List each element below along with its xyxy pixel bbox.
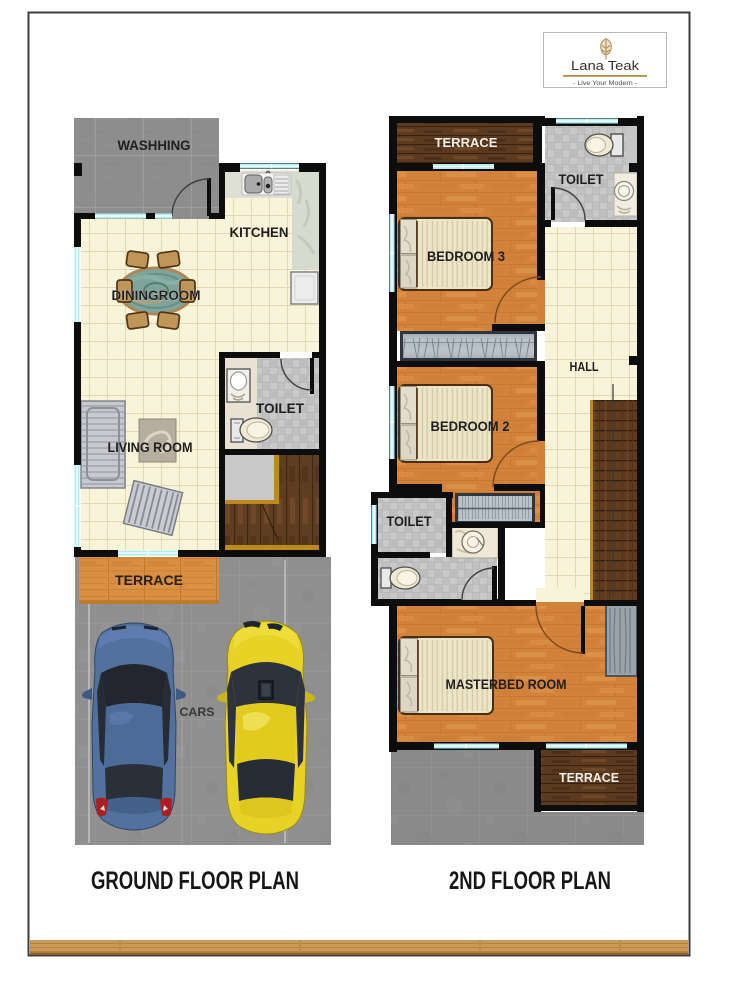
svg-text:TOILET: TOILET — [256, 401, 305, 416]
svg-text:BEDROOM 2: BEDROOM 2 — [431, 419, 510, 434]
svg-text:HALL: HALL — [570, 360, 599, 374]
svg-text:Lana Teak: Lana Teak — [571, 58, 640, 73]
svg-text:TOILET: TOILET — [559, 172, 605, 187]
svg-text:TOILET: TOILET — [387, 514, 433, 529]
svg-text:DININGROOM: DININGROOM — [112, 288, 201, 303]
svg-text:KITCHEN: KITCHEN — [230, 225, 289, 240]
svg-text:2ND FLOOR PLAN: 2ND FLOOR PLAN — [449, 867, 611, 895]
svg-text:MASTERBED ROOM: MASTERBED ROOM — [446, 677, 567, 692]
svg-text:LIVING ROOM: LIVING ROOM — [108, 440, 193, 455]
svg-text:WASHHING: WASHHING — [118, 138, 191, 153]
svg-text:GROUND FLOOR PLAN: GROUND FLOOR PLAN — [91, 867, 299, 895]
svg-text:CARS: CARS — [180, 705, 215, 719]
svg-text:TERRACE: TERRACE — [559, 770, 619, 785]
svg-text:TERRACE: TERRACE — [435, 135, 498, 150]
svg-text:BEDROOM 3: BEDROOM 3 — [427, 249, 505, 264]
svg-text:TERRACE: TERRACE — [115, 573, 183, 588]
svg-text:- Live Your Modern -: - Live Your Modern - — [573, 80, 637, 87]
